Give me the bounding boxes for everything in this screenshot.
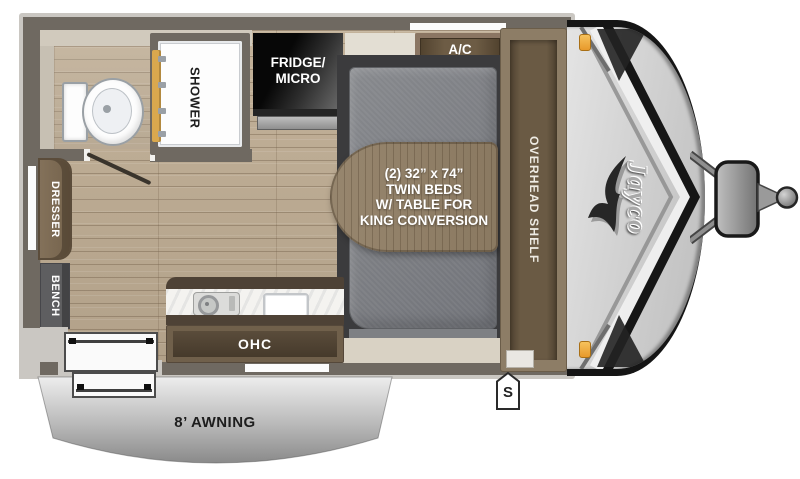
fridge-base-strip xyxy=(253,109,343,116)
counter-bottom-edge xyxy=(166,315,344,325)
shower-hinge xyxy=(158,82,166,88)
burner-center xyxy=(205,302,209,306)
shower-hinge xyxy=(158,108,166,114)
entry-step-lower xyxy=(72,372,156,398)
dresser-cabinet: DRESSER xyxy=(38,158,72,260)
window-left-wall xyxy=(28,166,36,250)
overhead-cabinet-label: OHC xyxy=(173,331,337,357)
overhead-shelf-label: OVERHEAD SHELF xyxy=(522,60,546,340)
shower-label: SHOWER xyxy=(184,48,206,148)
s-marker-letter: S xyxy=(496,384,520,401)
bathroom-wall-left-band xyxy=(40,46,54,149)
shower-door-strip xyxy=(152,50,161,142)
jayco-travel-trailer-floorplan: SHOWER FRIDGE/ MICRO A/C (2) 32” x 74” T… xyxy=(0,0,800,479)
step-hinge xyxy=(146,338,153,344)
stove-burner xyxy=(198,295,219,316)
bench-label: BENCH xyxy=(41,264,69,328)
step-edge-line xyxy=(76,389,152,392)
step-hinge xyxy=(77,384,84,390)
bed-table-label: (2) 32” x 74” TWIN BEDS W/ TABLE FOR KIN… xyxy=(330,142,498,252)
clearance-light-icon xyxy=(579,341,591,358)
step-hinge xyxy=(144,384,151,390)
clearance-light-icon xyxy=(579,34,591,51)
stove-cooktop xyxy=(193,292,240,316)
fridge-lower-drawer xyxy=(257,116,341,130)
king-conversion-table: (2) 32” x 74” TWIN BEDS W/ TABLE FOR KIN… xyxy=(330,142,498,252)
toilet-drain xyxy=(103,105,111,113)
bed-foot-shade xyxy=(349,329,497,338)
bed-foot-floor-strip xyxy=(337,338,500,363)
hitch-assembly xyxy=(690,140,800,255)
awning-label: 8’ AWNING xyxy=(85,414,345,431)
toilet-bowl-inner xyxy=(92,88,132,134)
window-top-wall xyxy=(410,23,506,30)
jayco-logo: Jayco xyxy=(618,138,656,258)
hitch-ball xyxy=(777,188,797,208)
step-edge-line xyxy=(68,340,154,343)
dresser-label: DRESSER xyxy=(40,160,70,258)
step-hinge xyxy=(69,338,76,344)
stove-controls xyxy=(229,296,235,311)
propane-tank-cover xyxy=(716,162,758,236)
shower-hinge xyxy=(158,131,166,137)
bench-seat: BENCH xyxy=(40,263,70,329)
s-marker: S xyxy=(496,372,520,410)
overhead-shelf-bottom-box xyxy=(506,350,534,368)
entry-step-landing xyxy=(64,332,158,372)
shower-hinge xyxy=(158,56,166,62)
fridge-micro-cabinet: FRIDGE/ MICRO xyxy=(253,33,343,109)
